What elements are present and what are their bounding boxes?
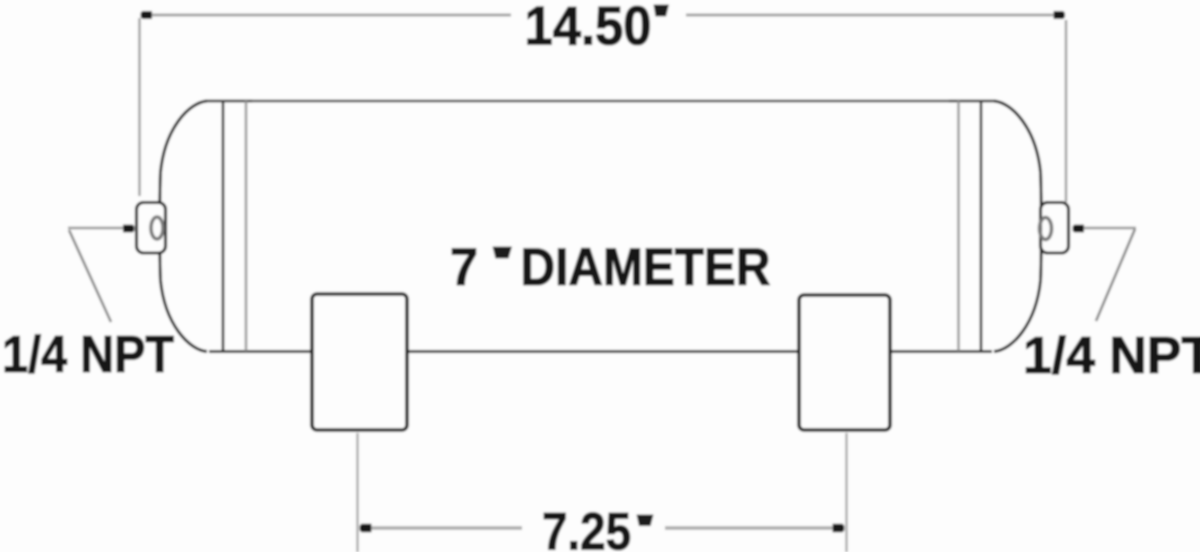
- svg-text:14.50: 14.50: [525, 0, 652, 57]
- svg-text:1/4 NPT: 1/4 NPT: [2, 326, 174, 384]
- svg-text:DIAMETER: DIAMETER: [521, 238, 771, 297]
- svg-text:7: 7: [450, 238, 478, 297]
- svg-text:1/4 NPT: 1/4 NPT: [1023, 327, 1200, 385]
- svg-text:7.25: 7.25: [542, 503, 631, 552]
